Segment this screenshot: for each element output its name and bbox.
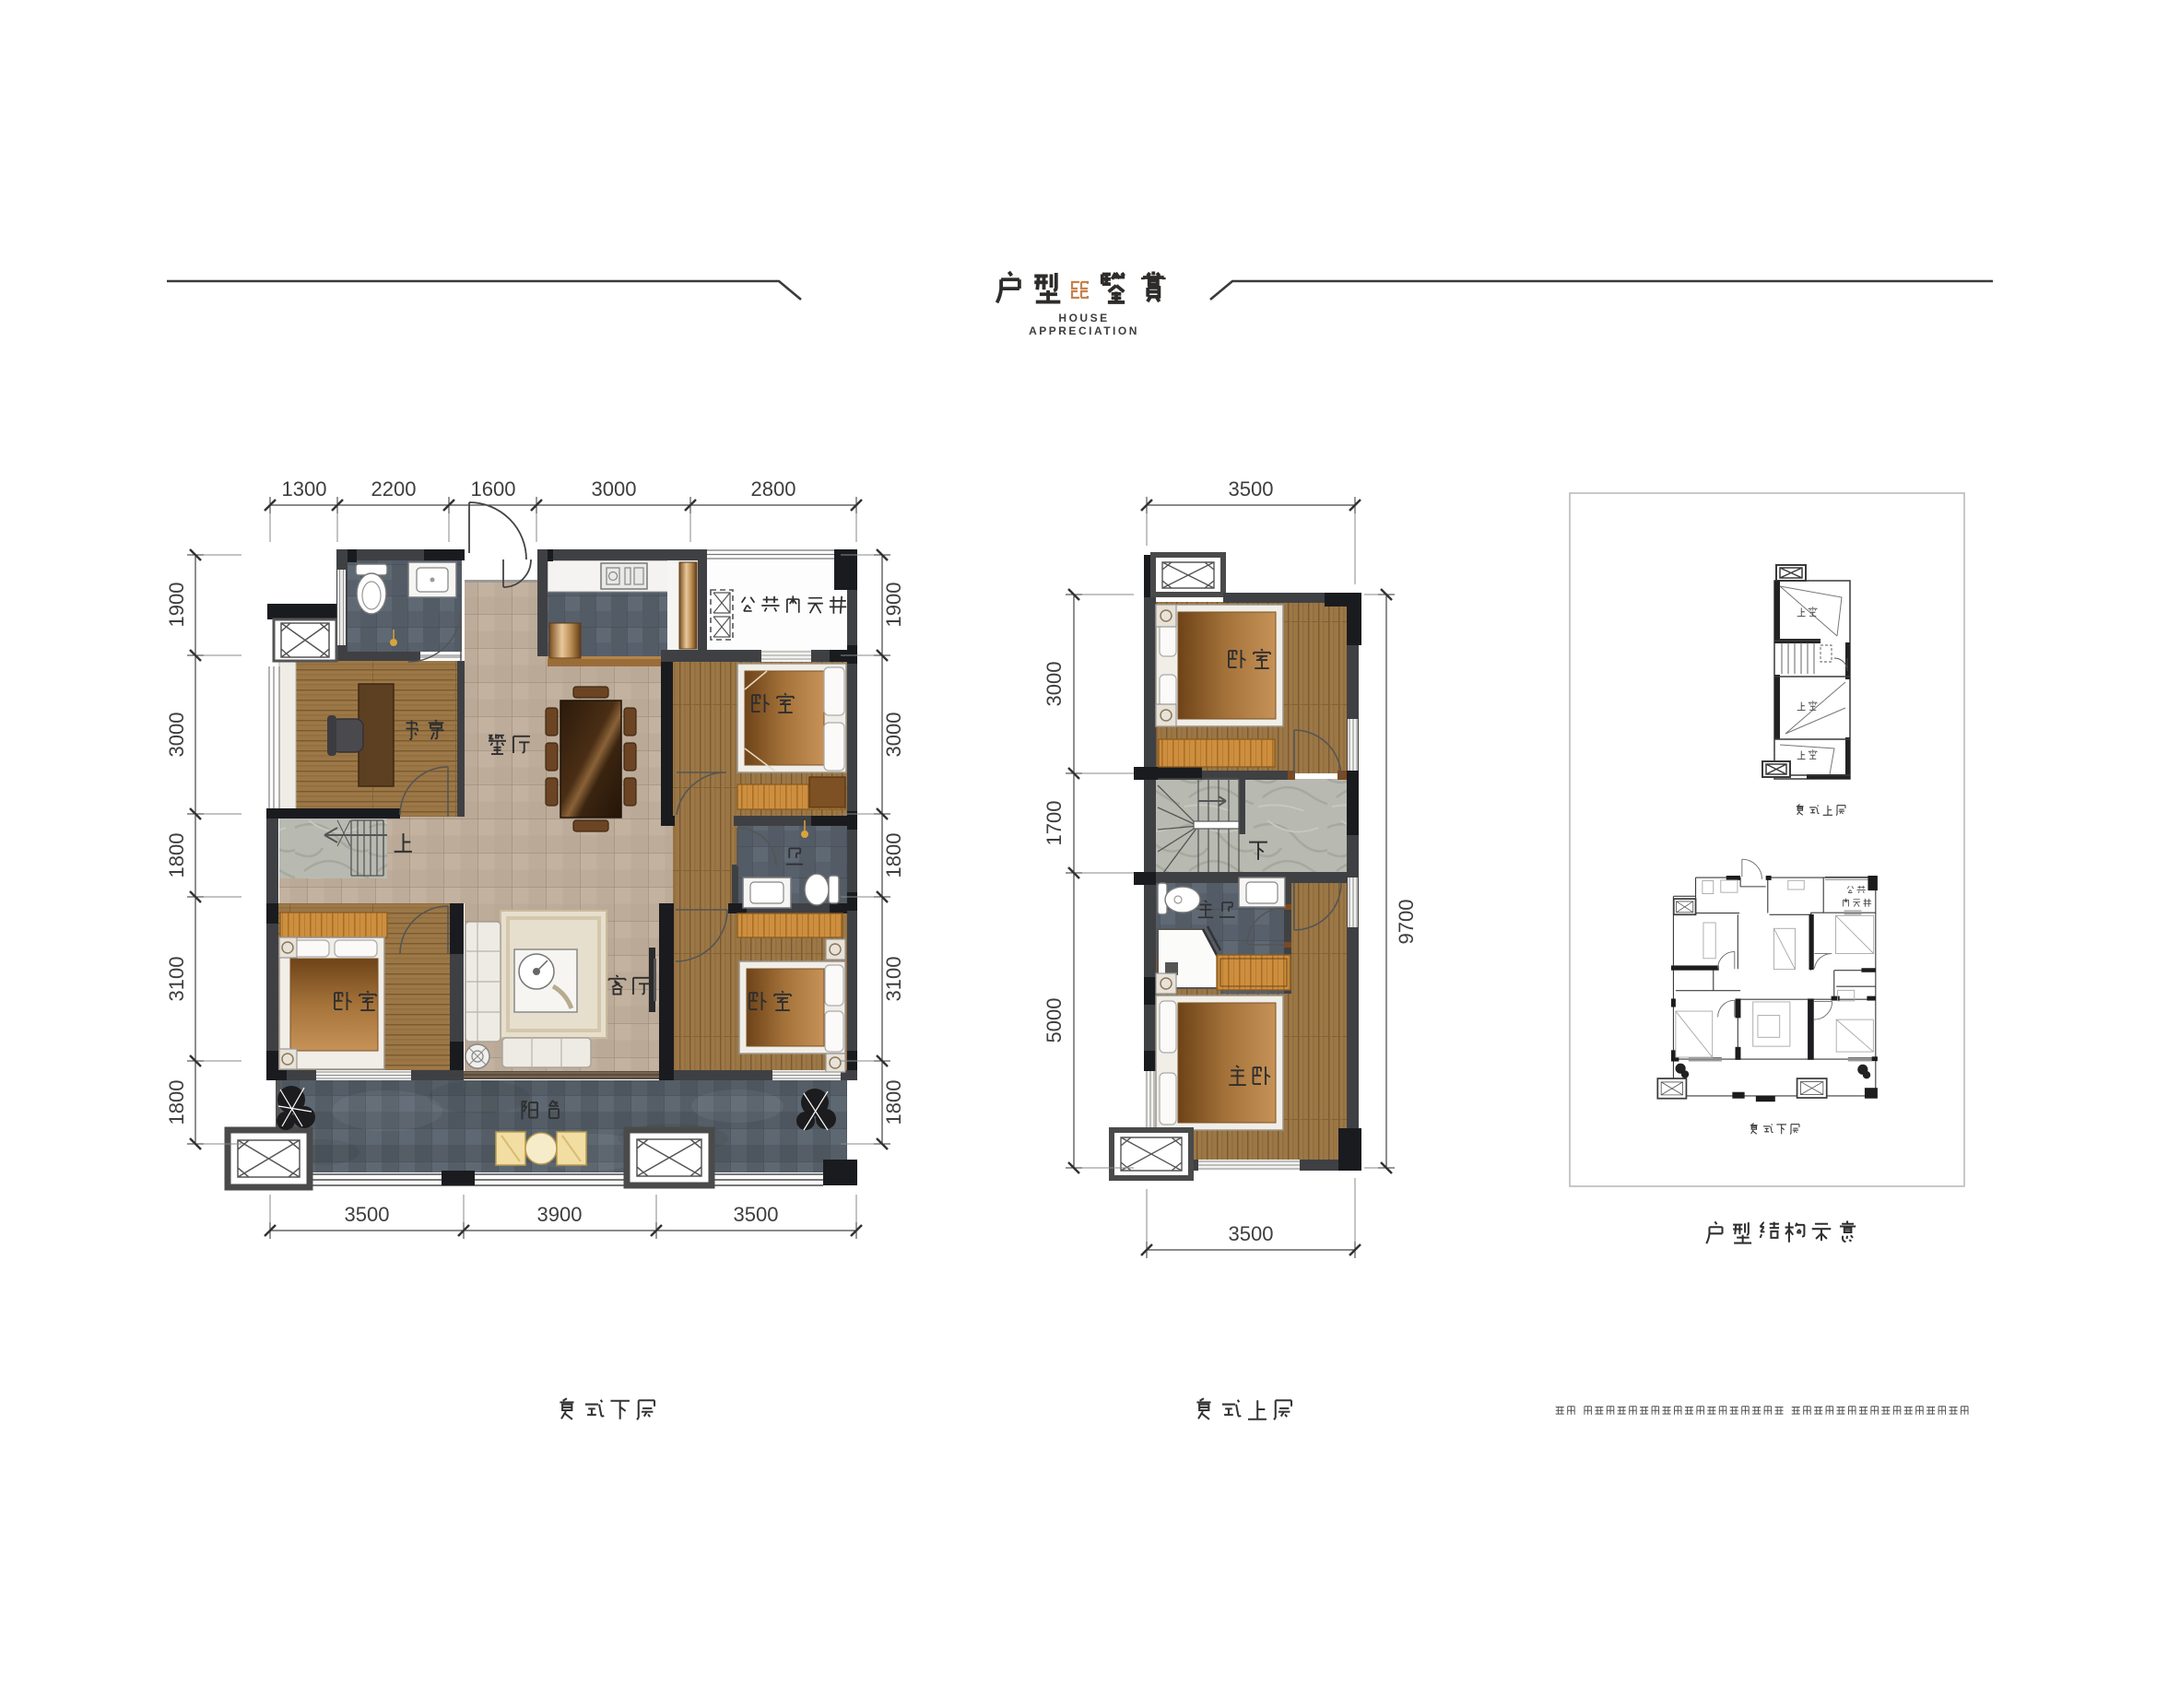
svg-text:2800: 2800: [751, 477, 796, 501]
svg-text:3500: 3500: [1229, 1222, 1274, 1245]
svg-text:9700: 9700: [1395, 900, 1418, 945]
svg-text:1800: 1800: [165, 1080, 188, 1125]
svg-text:3100: 3100: [882, 957, 905, 1002]
svg-text:3500: 3500: [345, 1203, 390, 1226]
svg-text:1800: 1800: [882, 1080, 905, 1125]
svg-text:1900: 1900: [165, 583, 188, 628]
svg-text:3500: 3500: [734, 1203, 779, 1226]
svg-text:3100: 3100: [165, 957, 188, 1002]
svg-text:3500: 3500: [1229, 477, 1274, 501]
svg-text:3900: 3900: [537, 1203, 583, 1226]
svg-text:1800: 1800: [165, 833, 188, 878]
svg-text:1900: 1900: [882, 583, 905, 628]
svg-text:3000: 3000: [1043, 662, 1066, 707]
svg-text:1600: 1600: [471, 477, 516, 501]
svg-text:2200: 2200: [371, 477, 417, 501]
svg-text:1700: 1700: [1043, 801, 1066, 846]
svg-text:APPRECIATION: APPRECIATION: [1029, 324, 1139, 337]
svg-text:3000: 3000: [882, 713, 905, 758]
svg-text:3000: 3000: [592, 477, 637, 501]
svg-text:5000: 5000: [1043, 998, 1066, 1043]
svg-text:1300: 1300: [282, 477, 327, 501]
svg-text:3000: 3000: [165, 713, 188, 758]
svg-text:HOUSE: HOUSE: [1058, 312, 1109, 324]
svg-text:1800: 1800: [882, 833, 905, 878]
